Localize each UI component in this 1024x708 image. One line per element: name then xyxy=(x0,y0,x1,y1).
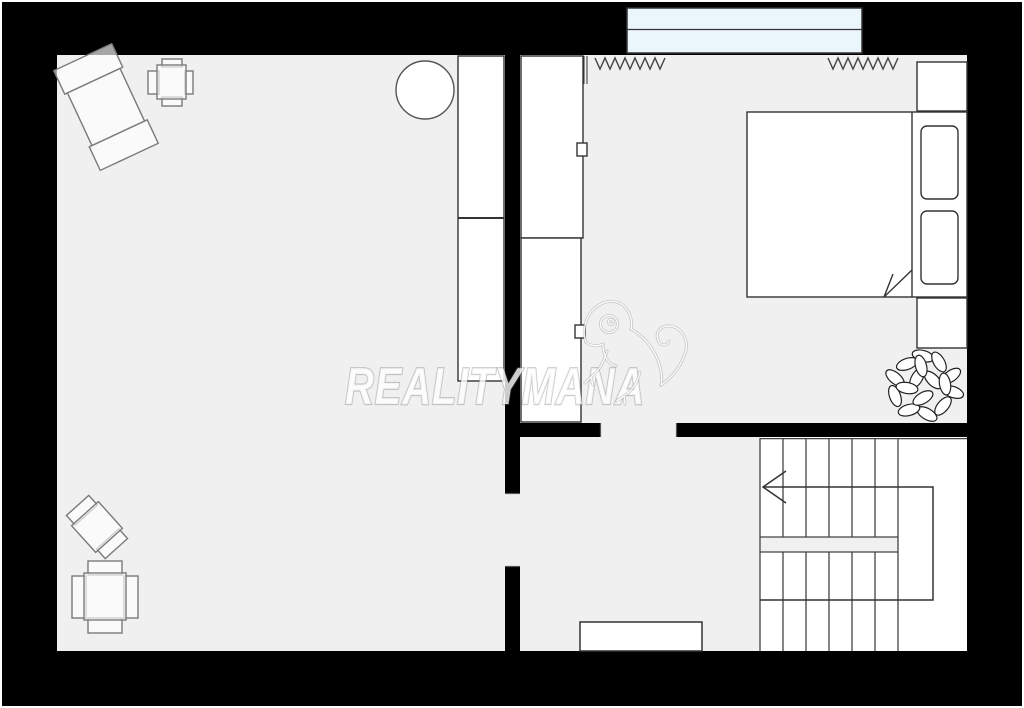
stair-flight-gap xyxy=(760,537,898,552)
wardrobe-handle xyxy=(577,143,587,156)
nightstand-top xyxy=(917,62,967,111)
hallway-floor xyxy=(520,437,760,651)
pillow xyxy=(921,126,958,199)
nightstand-bottom xyxy=(917,298,967,348)
double-bed xyxy=(747,112,967,297)
floor-plan-canvas: REALITYMANA xyxy=(0,0,1024,708)
living-room-wardrobe xyxy=(458,56,504,381)
door-living-to-hallway xyxy=(505,493,520,567)
pillow xyxy=(921,211,958,284)
hallway-cabinet xyxy=(580,622,702,651)
window xyxy=(627,8,862,53)
door-bedroom-to-hallway xyxy=(600,423,677,437)
round-table xyxy=(396,61,454,119)
